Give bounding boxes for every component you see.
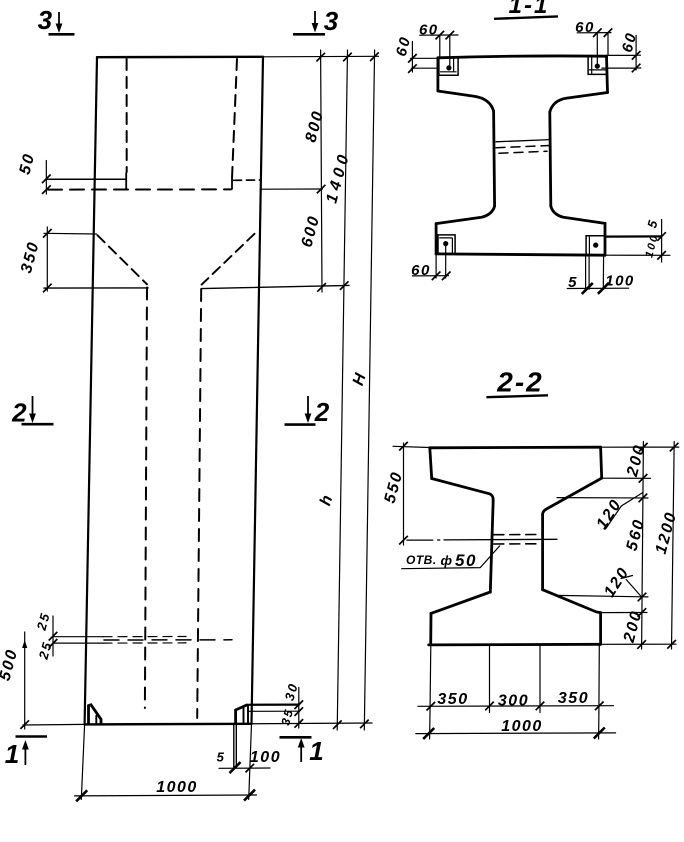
svg-text:100: 100 [605, 273, 635, 290]
svg-text:60: 60 [419, 22, 439, 39]
svg-text:1: 1 [5, 739, 19, 769]
svg-text:2: 2 [314, 397, 330, 427]
svg-text:60: 60 [411, 262, 431, 279]
svg-text:3: 3 [324, 6, 339, 36]
svg-text:1: 1 [309, 736, 323, 766]
svg-text:1000: 1000 [501, 718, 543, 735]
svg-text:1000: 1000 [156, 779, 198, 796]
svg-text:ф: ф [441, 553, 454, 568]
svg-text:350: 350 [558, 690, 589, 707]
svg-text:5: 5 [568, 274, 578, 291]
svg-text:2-2: 2-2 [496, 367, 543, 398]
svg-text:60: 60 [575, 19, 595, 36]
svg-text:100: 100 [250, 749, 281, 766]
svg-text:5: 5 [217, 750, 226, 765]
svg-text:ОТВ.: ОТВ. [406, 553, 437, 567]
svg-text:350: 350 [437, 691, 468, 708]
svg-text:300: 300 [498, 693, 529, 710]
svg-text:3: 3 [38, 5, 53, 35]
